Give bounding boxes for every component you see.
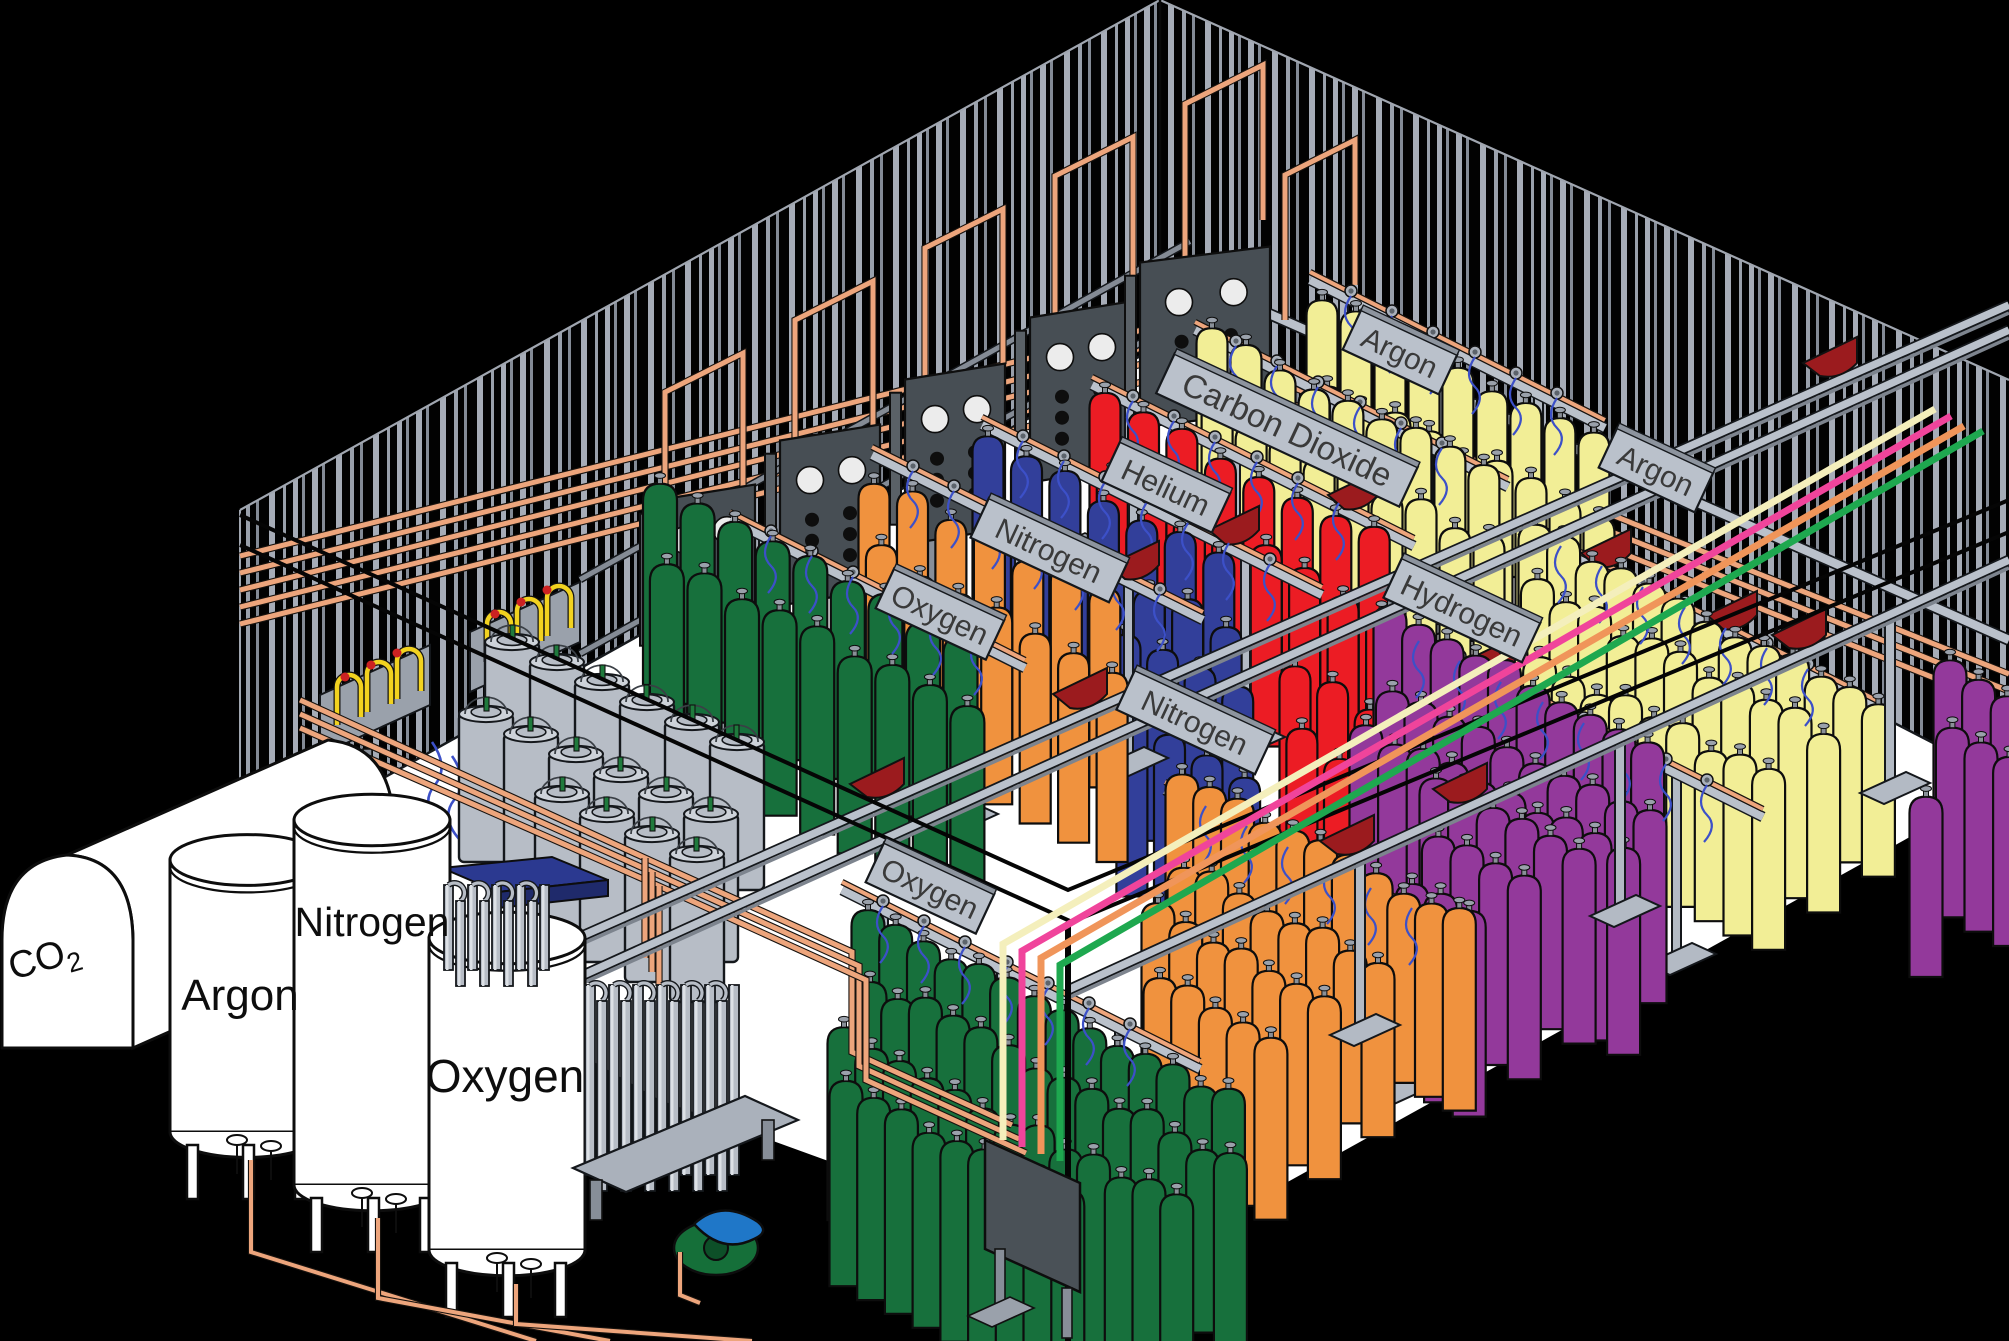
svg-text:Nitrogen: Nitrogen [295,899,450,945]
svg-text:Oxygen: Oxygen [426,1050,585,1102]
svg-text:Argon: Argon [181,971,298,1020]
